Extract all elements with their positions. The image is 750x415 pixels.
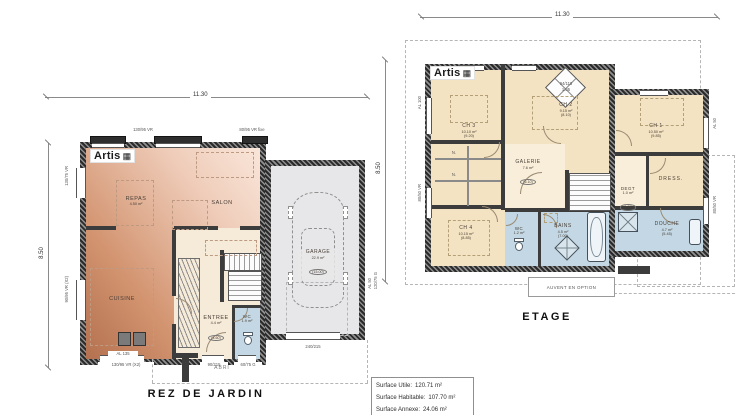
window-label: AL 50 [712, 118, 717, 129]
surface-line: Surface Utile:120.71 m² [376, 380, 473, 392]
room-label-wc: WC 1.2 m² [506, 226, 532, 235]
dimension-width-label: 11.30 [552, 12, 573, 18]
auvent-note: AUVENT EN OPTION [547, 285, 597, 290]
brand-grid-icon: ▦ [463, 69, 472, 78]
window [426, 98, 432, 134]
upper-floor-title: ETAGE [497, 311, 597, 323]
window [703, 198, 709, 224]
closet-mark: N. [448, 150, 460, 156]
room-label-ch4: CH 4 10.15 m² (8.85) [450, 226, 482, 240]
dimension-height-label: 8.50 [376, 159, 382, 177]
wing-wall [646, 156, 649, 210]
porch-wall-stub [618, 266, 650, 274]
roof-window-ref: 1.05 [553, 87, 579, 93]
brand-name: Artis [434, 67, 461, 79]
ch3-bed [450, 95, 488, 123]
stairs [569, 173, 611, 211]
room-label-bains: BAINS 4.5 m² (7.00) [545, 224, 581, 238]
window [426, 188, 432, 218]
room-label-ch2: CH 2 9.15 m² (8.10) [550, 103, 582, 117]
surface-line: Surface Annexe:24.06 m² [376, 404, 473, 415]
room-label-ch3: CH 3 10.10 m² (9.20) [453, 124, 485, 138]
floor-plans-sheet: 11.30 8.50 [0, 0, 750, 415]
surface-line: Surface Habitable:107.70 m² [376, 392, 473, 404]
window [640, 90, 668, 96]
room-label-dress: DRESS. [652, 177, 690, 183]
room-label-douche: DOUCHE 4.7 m² (5.45) [646, 222, 688, 236]
window [512, 65, 536, 71]
shower-tray-icon [618, 212, 638, 232]
window [703, 118, 709, 148]
bathtub-inner [590, 217, 603, 257]
room-label-ch1: CH 1 10.50 m² (9.85) [640, 124, 672, 138]
surface-summary-box: Surface Utile:120.71 m² Surface Habitabl… [371, 377, 474, 415]
roof-dashed-line [614, 293, 735, 294]
room-label-galerie: GALERIE 7.6 m² (6.10) [505, 160, 551, 189]
closet-divider [467, 146, 469, 206]
interior-wall [501, 64, 505, 142]
interior-wall [538, 212, 541, 266]
wing-wall [615, 152, 703, 156]
room-label-degt: DEGT 1.0 m² (1.35) [613, 186, 643, 214]
brand-logo: Artis ▦ [430, 66, 475, 80]
window-label: AL 100 [417, 96, 422, 109]
window-label: 80/50 VR [417, 184, 422, 201]
shower-basin-icon [689, 219, 701, 245]
toilet-icon [515, 242, 523, 251]
auvent-note-box: AUVENT EN OPTION [528, 277, 615, 297]
window-label: 80/50 VR [712, 196, 717, 213]
closet-mark: N. [448, 172, 460, 178]
dimension-line-left [385, 60, 386, 282]
ch1-bed [640, 98, 684, 126]
upper-floor-plan: 11.30 8.50 94/118 1.05 [0, 0, 750, 415]
roof-window-size: 94/118 [553, 81, 579, 87]
